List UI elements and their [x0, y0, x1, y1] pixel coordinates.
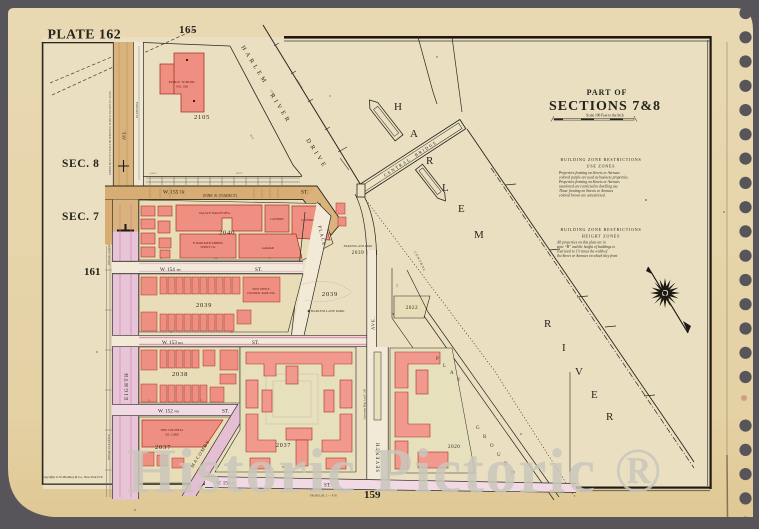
svg-text:ST.: ST. [252, 340, 259, 346]
svg-text:Convention Bldg. Lots F. 106: Convention Bldg. Lots F. 106 [364, 389, 367, 420]
svg-text:A: A [410, 128, 418, 140]
svg-text:R: R [426, 155, 434, 167]
svg-text:A: A [450, 371, 454, 376]
svg-text:Scale 100 Feet to the Inch: Scale 100 Feet to the Inch [586, 114, 624, 118]
svg-text:2039: 2039 [352, 251, 364, 256]
svg-text:ST.: ST. [301, 190, 308, 196]
svg-text:BUILDING ZONE RESTRICTIONS: BUILDING ZONE RESTRICTIONS [560, 227, 641, 232]
svg-text:COLONIAL PARK STA.: COLONIAL PARK STA. [247, 292, 276, 295]
svg-text:E: E [591, 389, 598, 401]
svg-text:PART OF: PART OF [587, 88, 628, 97]
svg-text:N. HARLEM PLUMBING: N. HARLEM PLUMBING [193, 242, 224, 245]
svg-text:165: 165 [179, 24, 197, 36]
svg-text:LAUNDRY: LAUNDRY [301, 219, 315, 222]
svg-text:ST.: ST. [255, 267, 262, 273]
svg-text:434.75: 434.75 [150, 172, 157, 175]
svg-text:colored brown are unrestricted: colored brown are unrestricted. [559, 194, 606, 198]
svg-text:Historic Pictoric ®: Historic Pictoric ® [127, 436, 663, 506]
svg-text:USE ZONES: USE ZONES [587, 164, 616, 169]
svg-text:Properties fronting on Streets: Properties fronting on Streets or Avenue… [558, 171, 620, 175]
svg-text:HARLEM LANE PARK: HARLEM LANE PARK [344, 244, 374, 248]
svg-text:colored purple are used as bus: colored purple are used as business prop… [559, 176, 629, 180]
svg-text:2105: 2105 [194, 114, 210, 121]
svg-text:the Street or Avenues on which: the Street or Avenues on which they fron… [557, 254, 618, 258]
svg-text:POST OFFICE: POST OFFICE [252, 288, 269, 291]
svg-text:V: V [575, 366, 583, 378]
svg-text:EIGHTH: EIGHTH [124, 372, 130, 400]
svg-text:L: L [442, 182, 449, 194]
svg-text:NO. 186: NO. 186 [176, 85, 188, 89]
svg-text:SEC. 7: SEC. 7 [62, 211, 99, 223]
svg-text:NEW COLONIAL: NEW COLONIAL [161, 428, 184, 432]
svg-text:L: L [443, 364, 446, 369]
svg-text:◆ HARLEM LANE PARK: ◆ HARLEM LANE PARK [307, 309, 345, 313]
svg-text:PLATE 162: PLATE 162 [48, 27, 122, 42]
svg-text:9TH AV. ELEVATED: 9TH AV. ELEVATED [107, 433, 111, 460]
svg-text:SECTIONS 7&8: SECTIONS 7&8 [549, 99, 661, 114]
svg-text:E: E [458, 203, 465, 215]
svg-text:2038: 2038 [172, 371, 188, 378]
svg-text:G: G [476, 426, 480, 431]
svg-text:uncolored are restricted to dw: uncolored are restricted to dwelling use… [559, 185, 619, 189]
svg-text:2022: 2022 [406, 306, 418, 311]
svg-text:GARAGE: GARAGE [262, 246, 275, 250]
svg-text:161: 161 [84, 266, 101, 278]
svg-text:M: M [474, 229, 484, 241]
svg-text:All properties on this plate a: All properties on this plate are in [556, 241, 606, 245]
svg-text:HEIGHT ZONES: HEIGHT ZONES [582, 234, 620, 239]
svg-text:SEC. 8: SEC. 8 [62, 158, 99, 170]
svg-text:2040: 2040 [219, 230, 235, 237]
svg-text:Y: Y [457, 378, 461, 383]
svg-text:LAUNDRY: LAUNDRY [270, 218, 284, 221]
svg-text:ZONE B (VIADUCT): ZONE B (VIADUCT) [203, 194, 238, 198]
svg-text:I: I [562, 342, 566, 354]
svg-text:zone “B” and the height of bui: zone “B” and the height of buildings is [556, 244, 615, 249]
svg-text:AVE.: AVE. [371, 316, 376, 330]
svg-text:PUBLIC SCHOOL: PUBLIC SCHOOL [169, 80, 195, 84]
svg-text:479.75: 479.75 [236, 172, 243, 175]
svg-text:SUPPLY CO.: SUPPLY CO. [200, 246, 216, 249]
svg-text:PALACE WAGON MFG.: PALACE WAGON MFG. [199, 211, 231, 215]
svg-text:2039: 2039 [322, 291, 338, 298]
svg-text:P: P [436, 357, 439, 362]
svg-text:Those fronting on Streets or A: Those fronting on Streets or Avenues [559, 189, 614, 193]
svg-text:RIDERS MUST NOT PASS THE SPEED: RIDERS MUST NOT PASS THE SPEEDWAY SUNDAY… [109, 91, 112, 175]
svg-text:R: R [544, 318, 552, 330]
svg-text:Properties fronting on Streets: Properties fronting on Streets or Avenue… [558, 180, 620, 184]
svg-text:2039: 2039 [196, 302, 212, 309]
svg-text:PLATFORM: PLATFORM [135, 102, 139, 118]
svg-text:R: R [606, 411, 614, 423]
svg-text:AVE.: AVE. [122, 131, 127, 140]
svg-text:ST.: ST. [222, 409, 229, 415]
svg-text:restricted to 1½ times the wid: restricted to 1½ times the width of [557, 250, 608, 254]
svg-text:BUILDING ZONE RESTRICTIONS: BUILDING ZONE RESTRICTIONS [560, 157, 641, 162]
svg-text:H: H [394, 101, 402, 113]
